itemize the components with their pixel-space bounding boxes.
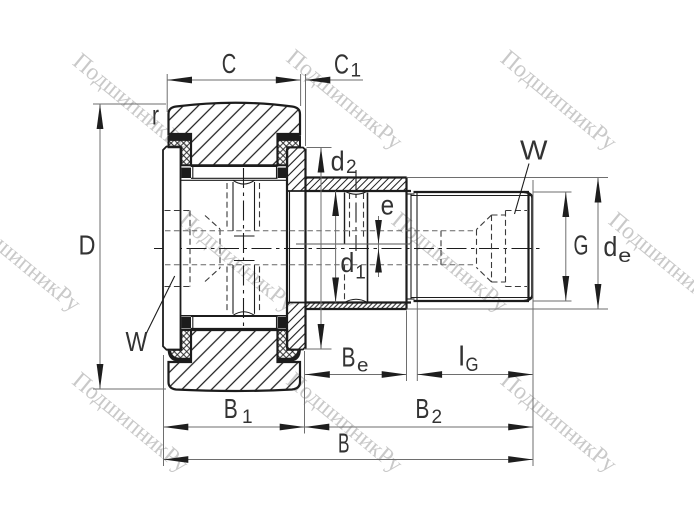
svg-text:d: d bbox=[331, 146, 345, 177]
svg-text:B: B bbox=[415, 393, 429, 424]
svg-text:G: G bbox=[466, 355, 479, 376]
svg-text:B: B bbox=[224, 393, 238, 424]
svg-text:e: e bbox=[357, 356, 369, 377]
svg-text:2: 2 bbox=[346, 157, 357, 178]
svg-text:W: W bbox=[126, 326, 148, 357]
svg-text:G: G bbox=[574, 230, 589, 261]
svg-text:B: B bbox=[342, 342, 356, 373]
svg-text:l: l bbox=[459, 341, 465, 372]
svg-text:W: W bbox=[520, 135, 548, 166]
svg-text:e: e bbox=[618, 246, 631, 267]
svg-text:e: e bbox=[381, 190, 395, 221]
svg-text:1: 1 bbox=[351, 61, 362, 82]
svg-text:D: D bbox=[79, 230, 96, 261]
svg-text:1: 1 bbox=[355, 263, 366, 284]
svg-text:C: C bbox=[222, 48, 237, 79]
svg-text:r: r bbox=[152, 100, 159, 131]
svg-text:1: 1 bbox=[242, 407, 253, 428]
svg-text:B: B bbox=[338, 428, 350, 459]
svg-text:d: d bbox=[603, 231, 617, 262]
svg-text:2: 2 bbox=[432, 407, 443, 428]
svg-text:C: C bbox=[334, 49, 349, 80]
svg-text:d: d bbox=[340, 247, 354, 278]
